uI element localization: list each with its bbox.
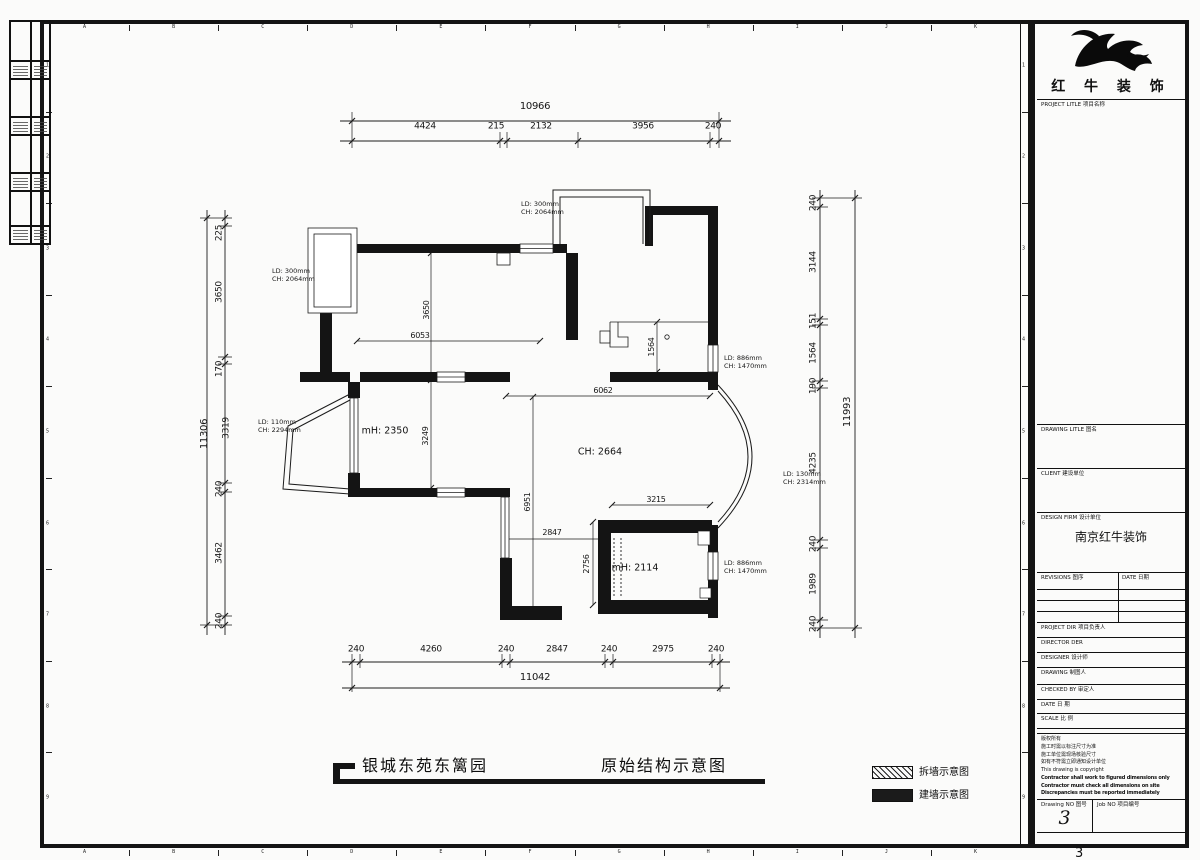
dim-right-seg: 1989 (810, 573, 819, 595)
project-dir-label: PROJECT DIR 项目负责人 (1041, 625, 1105, 632)
job-no-label: Job NO 项目编号 (1097, 802, 1139, 809)
copyright-line: Contractor must check all dimensions on … (1041, 783, 1160, 789)
dim-right-seg: 3144 (810, 251, 819, 273)
copyright-line: Contractor shall work to figured dimensi… (1041, 775, 1170, 781)
legend-label-build: 建墙示意图 (919, 791, 969, 801)
room-label-mh2350: mH: 2350 (362, 426, 409, 436)
date-col-label: DATE 日期 (1122, 575, 1149, 582)
opening-note: LD: 300mmCH: 2064mm (272, 267, 308, 283)
title-block: 红 牛 装 饰 PROJECT LITLE 项目名称 DRAWING LITLE… (1037, 24, 1185, 844)
dim-interior: 3215 (646, 496, 665, 504)
dimension-lines (200, 112, 862, 692)
copyright-line: 版权所有 (1041, 736, 1061, 742)
designer-cell: DESIGNER 设计师 (1037, 653, 1185, 668)
drawing-title-label: DRAWING LITLE 图名 (1041, 427, 1097, 434)
legend-label-demolish: 拆墙示意图 (919, 768, 969, 778)
dim-interior: 2847 (542, 529, 561, 537)
checked-by-label: CHECKED BY 审定人 (1041, 687, 1094, 694)
copyright-line: Discrepancies must be reported immediate… (1041, 790, 1160, 796)
dim-right-seg: 151 (810, 313, 819, 329)
revisions-label: REVISIONS 图序 (1041, 575, 1083, 582)
dim-top-seg: 240 (705, 123, 721, 132)
dim-left-total: 11306 (200, 419, 210, 449)
drawing-no-value: 3 (1037, 809, 1092, 828)
date-label: DATE 日 期 (1041, 702, 1070, 709)
dim-interior: 3249 (422, 426, 430, 445)
dim-right-seg: 1564 (810, 342, 819, 364)
opening-note: LD: 886mmCH: 1470mm (724, 559, 767, 575)
project-title-cell: PROJECT LITLE 项目名称 (1037, 100, 1185, 425)
director-cell: DIRECTOR DER (1037, 638, 1185, 653)
dim-top-seg: 2132 (530, 123, 552, 132)
project-title-label: PROJECT LITLE 项目名称 (1041, 102, 1105, 109)
dim-top-seg: 3956 (632, 123, 654, 132)
checked-by-cell: CHECKED BY 审定人 (1037, 685, 1185, 700)
revision-row (1037, 601, 1185, 612)
copyright-line: 如有不符需立即通知设计单位 (1041, 759, 1106, 765)
dim-top-seg: 215 (488, 123, 504, 132)
dim-right-total: 11993 (843, 397, 853, 427)
dim-top-seg: 4424 (414, 123, 436, 132)
dim-bottom-seg: 4260 (420, 646, 442, 655)
copyright-cell: 版权所有 施工时需以标注尺寸为准 施工单位需现场核验尺寸 如有不符需立即通知设计… (1037, 733, 1185, 800)
dim-bottom-seg: 240 (498, 646, 514, 655)
room-label-ch2664: CH: 2664 (578, 447, 622, 457)
revision-row (1037, 612, 1185, 623)
client-cell: CLIENT 建设单位 (1037, 469, 1185, 513)
opening-note: LD: 130mmCH: 2314mm (783, 470, 826, 486)
project-dir-cell: PROJECT DIR 项目负责人 (1037, 623, 1185, 638)
revisions-header: REVISIONS 图序 DATE 日期 (1037, 573, 1185, 590)
legend-swatch-build (872, 789, 913, 802)
director-label: DIRECTOR DER (1041, 640, 1083, 647)
copyright-line: 施工时需以标注尺寸为准 (1041, 744, 1096, 750)
drawing-label: DRAWING 制图人 (1041, 670, 1086, 677)
design-firm-cell: DESIGN FIRM 设计单位 南京红牛装饰 (1037, 513, 1185, 573)
design-firm-value: 南京红牛装饰 (1037, 531, 1185, 543)
dim-right-seg: 190 (810, 378, 819, 394)
copyright-line: 施工单位需现场核验尺寸 (1041, 752, 1096, 758)
redniu-logo-icon (1065, 26, 1157, 74)
floor-plan-linework (0, 0, 1200, 860)
scale-label: SCALE 比 例 (1041, 716, 1073, 723)
dim-right-seg: 240 (810, 616, 819, 632)
dim-left-seg: 170 (216, 361, 225, 377)
dim-left-seg: 3462 (216, 542, 225, 564)
dim-top-total: 10966 (520, 102, 550, 112)
client-label: CLIENT 建设单位 (1041, 471, 1084, 478)
drawing-no-cell: Drawing NO 图号 Job NO 项目编号 3 (1037, 800, 1185, 833)
revision-row (1037, 590, 1185, 601)
windows (308, 228, 718, 598)
dim-interior: 6053 (410, 332, 429, 340)
legend-swatch-demolish (872, 766, 913, 779)
title-bracket-h (340, 763, 355, 769)
designer-label: DESIGNER 设计师 (1041, 655, 1088, 662)
dim-interior: 3650 (423, 300, 431, 319)
dim-right-seg: 240 (810, 195, 819, 211)
drawing-cell: DRAWING 制图人 (1037, 668, 1185, 685)
copyright-line: This drawing is copyright (1041, 767, 1104, 773)
dim-bottom-seg: 240 (601, 646, 617, 655)
opening-note: LD: 300mmCH: 2064mm (521, 200, 564, 216)
dim-bottom-total: 11042 (520, 673, 550, 683)
dim-interior: 2756 (583, 554, 591, 573)
title-underline (333, 779, 765, 784)
project-name: 银城东苑东篱园 (362, 758, 488, 774)
opening-note: LD: 886mmCH: 1470mm (724, 354, 767, 370)
scale-cell: SCALE 比 例 (1037, 714, 1185, 729)
dim-interior: 6062 (593, 387, 612, 395)
design-firm-label: DESIGN FIRM 设计单位 (1041, 515, 1101, 522)
dim-left-seg: 240 (216, 613, 225, 629)
drawing-sheet: ABCDEFGHIJK ABCDEFGHIJK 123456789 123456… (0, 0, 1200, 860)
dim-bottom-seg: 240 (348, 646, 364, 655)
date-cell: DATE 日 期 (1037, 700, 1185, 714)
dim-bottom-seg: 240 (708, 646, 724, 655)
logo-cell: 红 牛 装 饰 (1037, 24, 1185, 100)
dim-bottom-seg: 2847 (546, 646, 568, 655)
dim-left-seg: 3319 (223, 417, 232, 439)
drawing-title-cell: DRAWING LITLE 图名 (1037, 425, 1185, 469)
dim-left-seg: 225 (216, 225, 225, 241)
dim-left-seg: 3650 (216, 281, 225, 303)
room-label-mh2114: mH: 2114 (612, 563, 659, 573)
dim-left-seg: 240 (216, 481, 225, 497)
dim-interior: 1564 (648, 337, 656, 356)
dim-bottom-seg: 2975 (652, 646, 674, 655)
opening-note: LD: 110mmCH: 2294mm (258, 418, 301, 434)
drawing-name: 原始结构示意图 (601, 758, 727, 774)
logo-name: 红 牛 装 饰 (1037, 80, 1185, 94)
dim-interior: 6951 (524, 492, 532, 511)
dim-right-seg: 240 (810, 536, 819, 552)
